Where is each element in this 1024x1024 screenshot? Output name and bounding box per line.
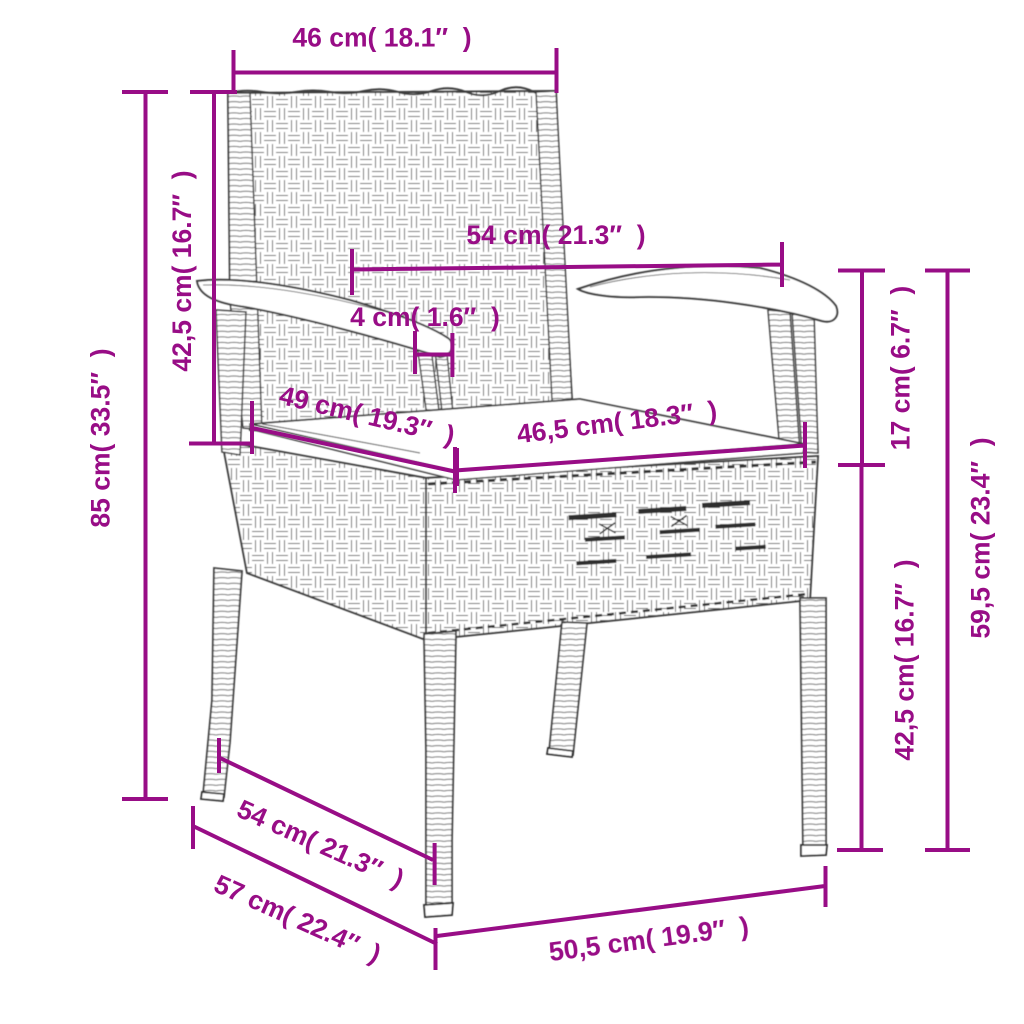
svg-text:57 cm( 22.4″ ): 57 cm( 22.4″ )	[210, 869, 386, 969]
svg-text:54 cm( 21.3″ ): 54 cm( 21.3″ )	[466, 220, 645, 250]
svg-text:42,5 cm( 16.7″ ): 42,5 cm( 16.7″ )	[167, 170, 197, 371]
svg-text:17 cm( 6.7″ ): 17 cm( 6.7″ )	[886, 286, 916, 450]
svg-text:42,5 cm( 16.7″ ): 42,5 cm( 16.7″ )	[890, 559, 920, 760]
svg-text:4 cm( 1.6″ ): 4 cm( 1.6″ )	[350, 302, 500, 332]
svg-text:54 cm( 21.3″ ): 54 cm( 21.3″ )	[233, 794, 409, 894]
svg-text:46 cm( 18.1″ ): 46 cm( 18.1″ )	[292, 23, 471, 53]
svg-text:59,5 cm( 23.4″ ): 59,5 cm( 23.4″ )	[966, 437, 996, 638]
svg-text:85 cm( 33.5″ ): 85 cm( 33.5″ )	[86, 348, 116, 527]
